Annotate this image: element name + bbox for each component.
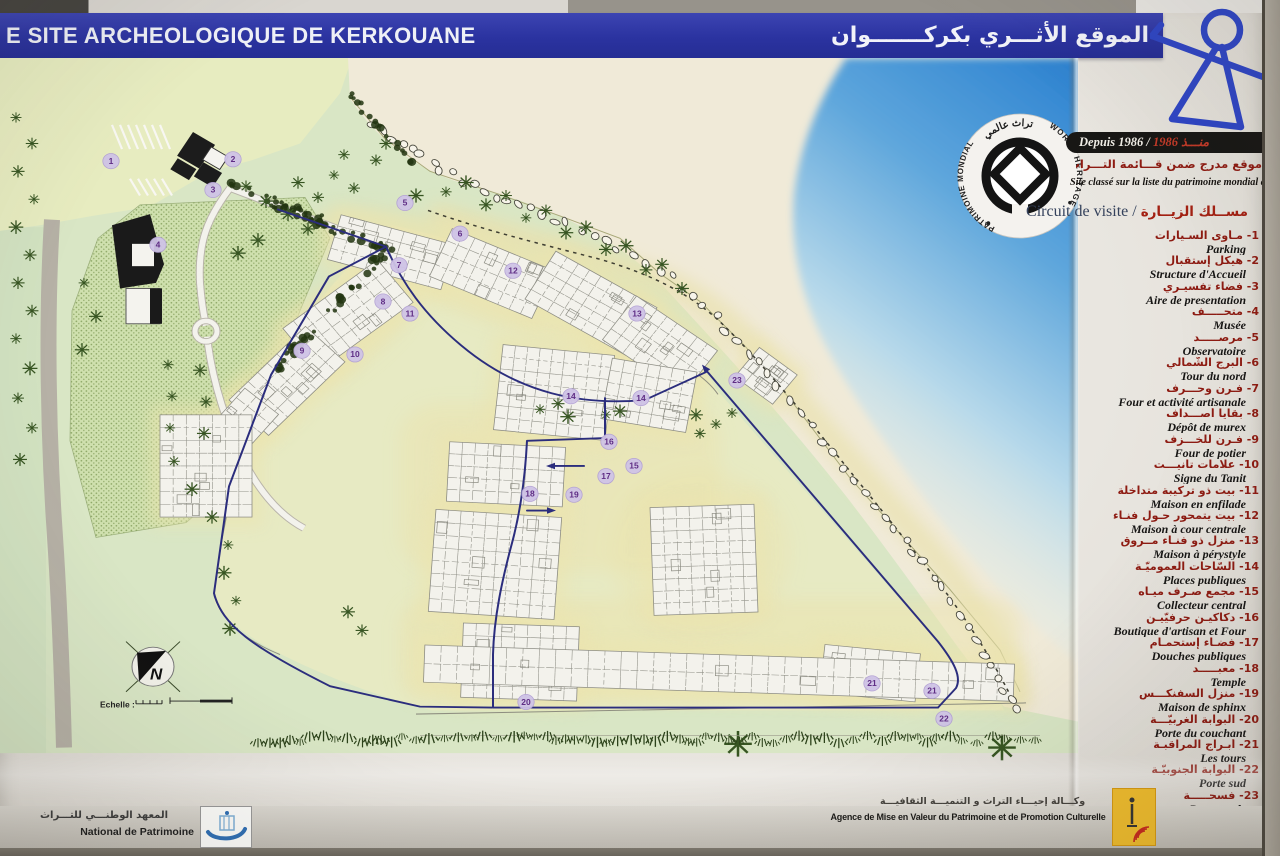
map-marker: 4	[150, 237, 166, 252]
legend-item-french: Collecteur central	[1080, 599, 1262, 611]
legend-item-arabic: 23- فسحـــــة	[1080, 790, 1262, 802]
map-marker: 3	[205, 182, 221, 197]
map-marker: 12	[505, 263, 521, 278]
map-marker: 15	[626, 458, 642, 473]
since-arabic: 1986 منـــذ	[1153, 135, 1209, 149]
map-marker: 1	[103, 154, 119, 169]
site-title-arabic: الموقع الأثـــري بكركـــــــوان	[823, 23, 1149, 48]
map-marker: 18	[522, 486, 538, 501]
svg-text:5: 5	[403, 199, 408, 208]
amvppc-name-french: Agence de Mise en Valeur du Patrimoine e…	[826, 812, 1110, 822]
svg-text:21: 21	[927, 687, 937, 696]
legend-list: 1- مـأوى السـياراتParking2- هيكل إستقبال…	[1080, 230, 1262, 830]
map-marker: 14	[633, 390, 649, 405]
legend-item-arabic: 16- دكاكيـن حرفيّيـن	[1080, 612, 1262, 624]
site-title-french: E SITE ARCHEOLOGIQUE DE KERKOUANE	[6, 23, 476, 49]
legend-item-french: Four et activité artisanale	[1080, 396, 1262, 408]
legend-item-arabic: 10- علامات تانيـــت	[1080, 459, 1262, 471]
legend-item-arabic: 22- البوابة الجنوبيّـة	[1080, 764, 1262, 776]
legend-item: 17- فضـاء إستحمـامDouches publiques	[1080, 637, 1262, 662]
svg-text:10: 10	[350, 350, 360, 359]
svg-text:2: 2	[231, 155, 236, 164]
map-marker: 20	[518, 694, 534, 709]
svg-text:17: 17	[601, 472, 611, 481]
since-french: Depuis 1986 /	[1079, 135, 1153, 149]
legend-item: 18- معبـــــدTemple	[1080, 663, 1262, 688]
inp-name-french: National de Patrimoine	[2, 826, 194, 838]
legend-item: 13- منزل ذو فنـاء مــروقMaison à pérysty…	[1080, 535, 1262, 560]
legend-item-arabic: 6- البرج الشّمالي	[1080, 357, 1262, 369]
tanit-symbol-icon	[1150, 0, 1262, 140]
map-marker: 19	[566, 487, 582, 502]
legend-item-arabic: 13- منزل ذو فنـاء مــروق	[1080, 535, 1262, 547]
legend-item: 1- مـأوى السـياراتParking	[1080, 230, 1262, 255]
legend-item-french: Porte sud	[1080, 777, 1262, 789]
legend-item-french: Maison à cour centrale	[1080, 523, 1262, 535]
svg-text:11: 11	[406, 310, 415, 319]
legend-item-french: Parking	[1080, 243, 1262, 255]
legend-item-french: Tour du nord	[1080, 370, 1262, 382]
svg-text:20: 20	[521, 698, 531, 707]
sign-panel: E SITE ARCHEOLOGIQUE DE KERKOUANE الموقع…	[0, 0, 1262, 848]
legend-item-french: Douches publiques	[1080, 650, 1262, 662]
legend-item-french: Places publiques	[1080, 574, 1262, 586]
legend-item: 5- مرصـــــدObservatoire	[1080, 332, 1262, 357]
legend-item-french: Temple	[1080, 676, 1262, 688]
legend-item-arabic: 7- فـرن وحـــرف	[1080, 383, 1262, 395]
legend-item: 14- السّاحات العموميّـةPlaces publiques	[1080, 561, 1262, 586]
map-marker: 16	[601, 434, 617, 449]
frame-top-edge	[0, 0, 1262, 13]
map-marker: 11	[402, 306, 418, 321]
legend-item-arabic: 11- بيت ذو تركيبة متداخلة	[1080, 485, 1262, 497]
legend-item: 12- بيت يتمحور حـول فنـاءMaison à cour c…	[1080, 510, 1262, 535]
unesco-listed-arabic: موقع مدرج ضمن قـــائمة التـــراث العـــا…	[1076, 157, 1262, 171]
svg-text:15: 15	[629, 462, 639, 471]
legend-item-arabic: 5- مرصـــــد	[1080, 332, 1262, 344]
legend-item: 16- دكاكيـن حرفيّيـنBoutique d'artisan e…	[1080, 612, 1262, 637]
legend-item: 9- فـرن للخـــزفFour de potier	[1080, 434, 1262, 459]
map-marker: 17	[598, 469, 614, 484]
map-marker: 13	[629, 306, 645, 321]
svg-text:18: 18	[525, 490, 535, 499]
legend-item-arabic: 4- متحـــــف	[1080, 306, 1262, 318]
site-map: 1234567891011121314141516171819202121222…	[0, 58, 1078, 820]
inp-logo	[200, 806, 252, 848]
legend-item-arabic: 9- فـرن للخـــزف	[1080, 434, 1262, 446]
legend-item-arabic: 2- هيكل إستقبال	[1080, 255, 1262, 267]
legend-item: 11- بيت ذو تركيبة متداخلةMaison en enfil…	[1080, 485, 1262, 510]
svg-text:12: 12	[508, 267, 518, 276]
map-marker: 9	[294, 343, 310, 358]
sign-photo: E SITE ARCHEOLOGIQUE DE KERKOUANE الموقع…	[0, 0, 1280, 856]
legend-item-arabic: 14- السّاحات العموميّـة	[1080, 561, 1262, 573]
map-marker: 6	[452, 226, 468, 241]
legend-item-arabic: 15- مجمع صـرف ميـاه	[1080, 586, 1262, 598]
legend-item: 2- هيكل إستقبالStructure d'Accueil	[1080, 255, 1262, 280]
map-marker: 8	[375, 294, 391, 309]
legend-item-french: Maison en enfilade	[1080, 498, 1262, 510]
legend-item: 3- فضاء تفسيـريAire de presentation	[1080, 281, 1262, 306]
legend-item-french: Maison de sphinx	[1080, 701, 1262, 713]
legend-item: 15- مجمع صـرف ميـاهCollecteur central	[1080, 586, 1262, 611]
svg-text:21: 21	[867, 679, 877, 688]
legend-item-arabic: 8- بقايا أصـــداف	[1080, 408, 1262, 420]
legend-item: 20- البوابة الغربيّـــةPorte du couchant	[1080, 714, 1262, 739]
north-arrow: N	[126, 642, 180, 692]
legend-item-arabic: 3- فضاء تفسيـري	[1080, 281, 1262, 293]
legend-item: 22- البوابة الجنوبيّـةPorte sud	[1080, 764, 1262, 789]
map-marker: 22	[936, 711, 952, 726]
legend-item-arabic: 12- بيت يتمحور حـول فنـاء	[1080, 510, 1262, 522]
svg-text:7: 7	[397, 261, 402, 270]
map-marker: 5	[397, 195, 413, 210]
svg-text:4: 4	[156, 241, 161, 250]
legend-item-french: Boutique d'artisan et Four	[1080, 625, 1262, 637]
amvppc-logo	[1112, 788, 1156, 846]
map-marker: 2	[225, 152, 241, 167]
photo-bottom-edge	[0, 848, 1262, 856]
map-marker: 21	[924, 683, 940, 698]
map-marker: 10	[347, 347, 363, 362]
map-marker: 7	[391, 258, 407, 273]
svg-text:3: 3	[211, 186, 216, 195]
legend-item-arabic: 20- البوابة الغربيّـــة	[1080, 714, 1262, 726]
legend-item-french: Structure d'Accueil	[1080, 268, 1262, 280]
scale-label: Echelle :	[100, 701, 135, 710]
legend-item: 8- بقايا أصـــدافDépôt de murex	[1080, 408, 1262, 433]
legend-item-french: Dépôt de murex	[1080, 421, 1262, 433]
unesco-listed-french: Site classé sur la liste du patrimoine m…	[1070, 177, 1262, 188]
legend-item-french: Aire de presentation	[1080, 294, 1262, 306]
svg-text:22: 22	[939, 715, 949, 724]
svg-text:19: 19	[569, 491, 579, 500]
legend-item-french: Porte du couchant	[1080, 727, 1262, 739]
legend-item: 19- منزل السفنكـــسMaison de sphinx	[1080, 688, 1262, 713]
title-banner: E SITE ARCHEOLOGIQUE DE KERKOUANE الموقع…	[0, 13, 1163, 58]
legend-item-arabic: 17- فضـاء إستحمـام	[1080, 637, 1262, 649]
svg-text:23: 23	[732, 377, 742, 386]
legend-item: 10- علامات تانيـــتSigne du Tanit	[1080, 459, 1262, 484]
map-marker: 14	[563, 389, 579, 404]
amvppc-name-arabic: وكـــالة إحيـــاء التراث و التنميـــة ال…	[880, 796, 1106, 807]
legend-heading: Circuit de visite / مســلك الزيــارة	[1026, 203, 1248, 221]
legend-heading-french: Circuit de visite /	[1026, 203, 1141, 220]
since-1986-band: Depuis 1986 / 1986 منـــذ	[1066, 132, 1262, 153]
svg-text:13: 13	[632, 310, 642, 319]
svg-text:8: 8	[381, 298, 386, 307]
legend-item-arabic: 19- منزل السفنكـــس	[1080, 688, 1262, 700]
legend-item-arabic: 1- مـأوى السـيارات	[1080, 230, 1262, 242]
map-marker: 21	[864, 676, 880, 691]
legend-item: 21- أبـراج المراقبـةLes tours	[1080, 739, 1262, 764]
map-marker: 23	[729, 373, 745, 388]
legend-item-arabic: 18- معبـــــد	[1080, 663, 1262, 675]
svg-text:9: 9	[300, 347, 305, 356]
inp-name-arabic: المعهد الوطنـــي للتـــراث	[40, 810, 196, 821]
svg-text:6: 6	[458, 230, 463, 239]
north-letter: N	[150, 666, 163, 683]
legend-item: 7- فـرن وحـــرفFour et activité artisana…	[1080, 383, 1262, 408]
legend-item-arabic: 21- أبـراج المراقبـة	[1080, 739, 1262, 751]
svg-text:1: 1	[109, 157, 114, 166]
legend-item-french: Maison à pérystyle	[1080, 548, 1262, 560]
svg-text:14: 14	[636, 394, 646, 403]
photo-right-edge	[1262, 0, 1280, 856]
legend-item-french: Les tours	[1080, 752, 1262, 764]
legend-item-french: Observatoire	[1080, 345, 1262, 357]
svg-text:16: 16	[604, 438, 614, 447]
legend-heading-arabic: مســلك الزيــارة	[1141, 204, 1248, 220]
legend-item-french: Musée	[1080, 319, 1262, 331]
legend-item: 6- البرج الشّماليTour du nord	[1080, 357, 1262, 382]
svg-text:14: 14	[566, 392, 576, 401]
legend-item-french: Four de potier	[1080, 447, 1262, 459]
legend-item: 4- متحـــــفMusée	[1080, 306, 1262, 331]
legend-item-french: Signe du Tanit	[1080, 472, 1262, 484]
